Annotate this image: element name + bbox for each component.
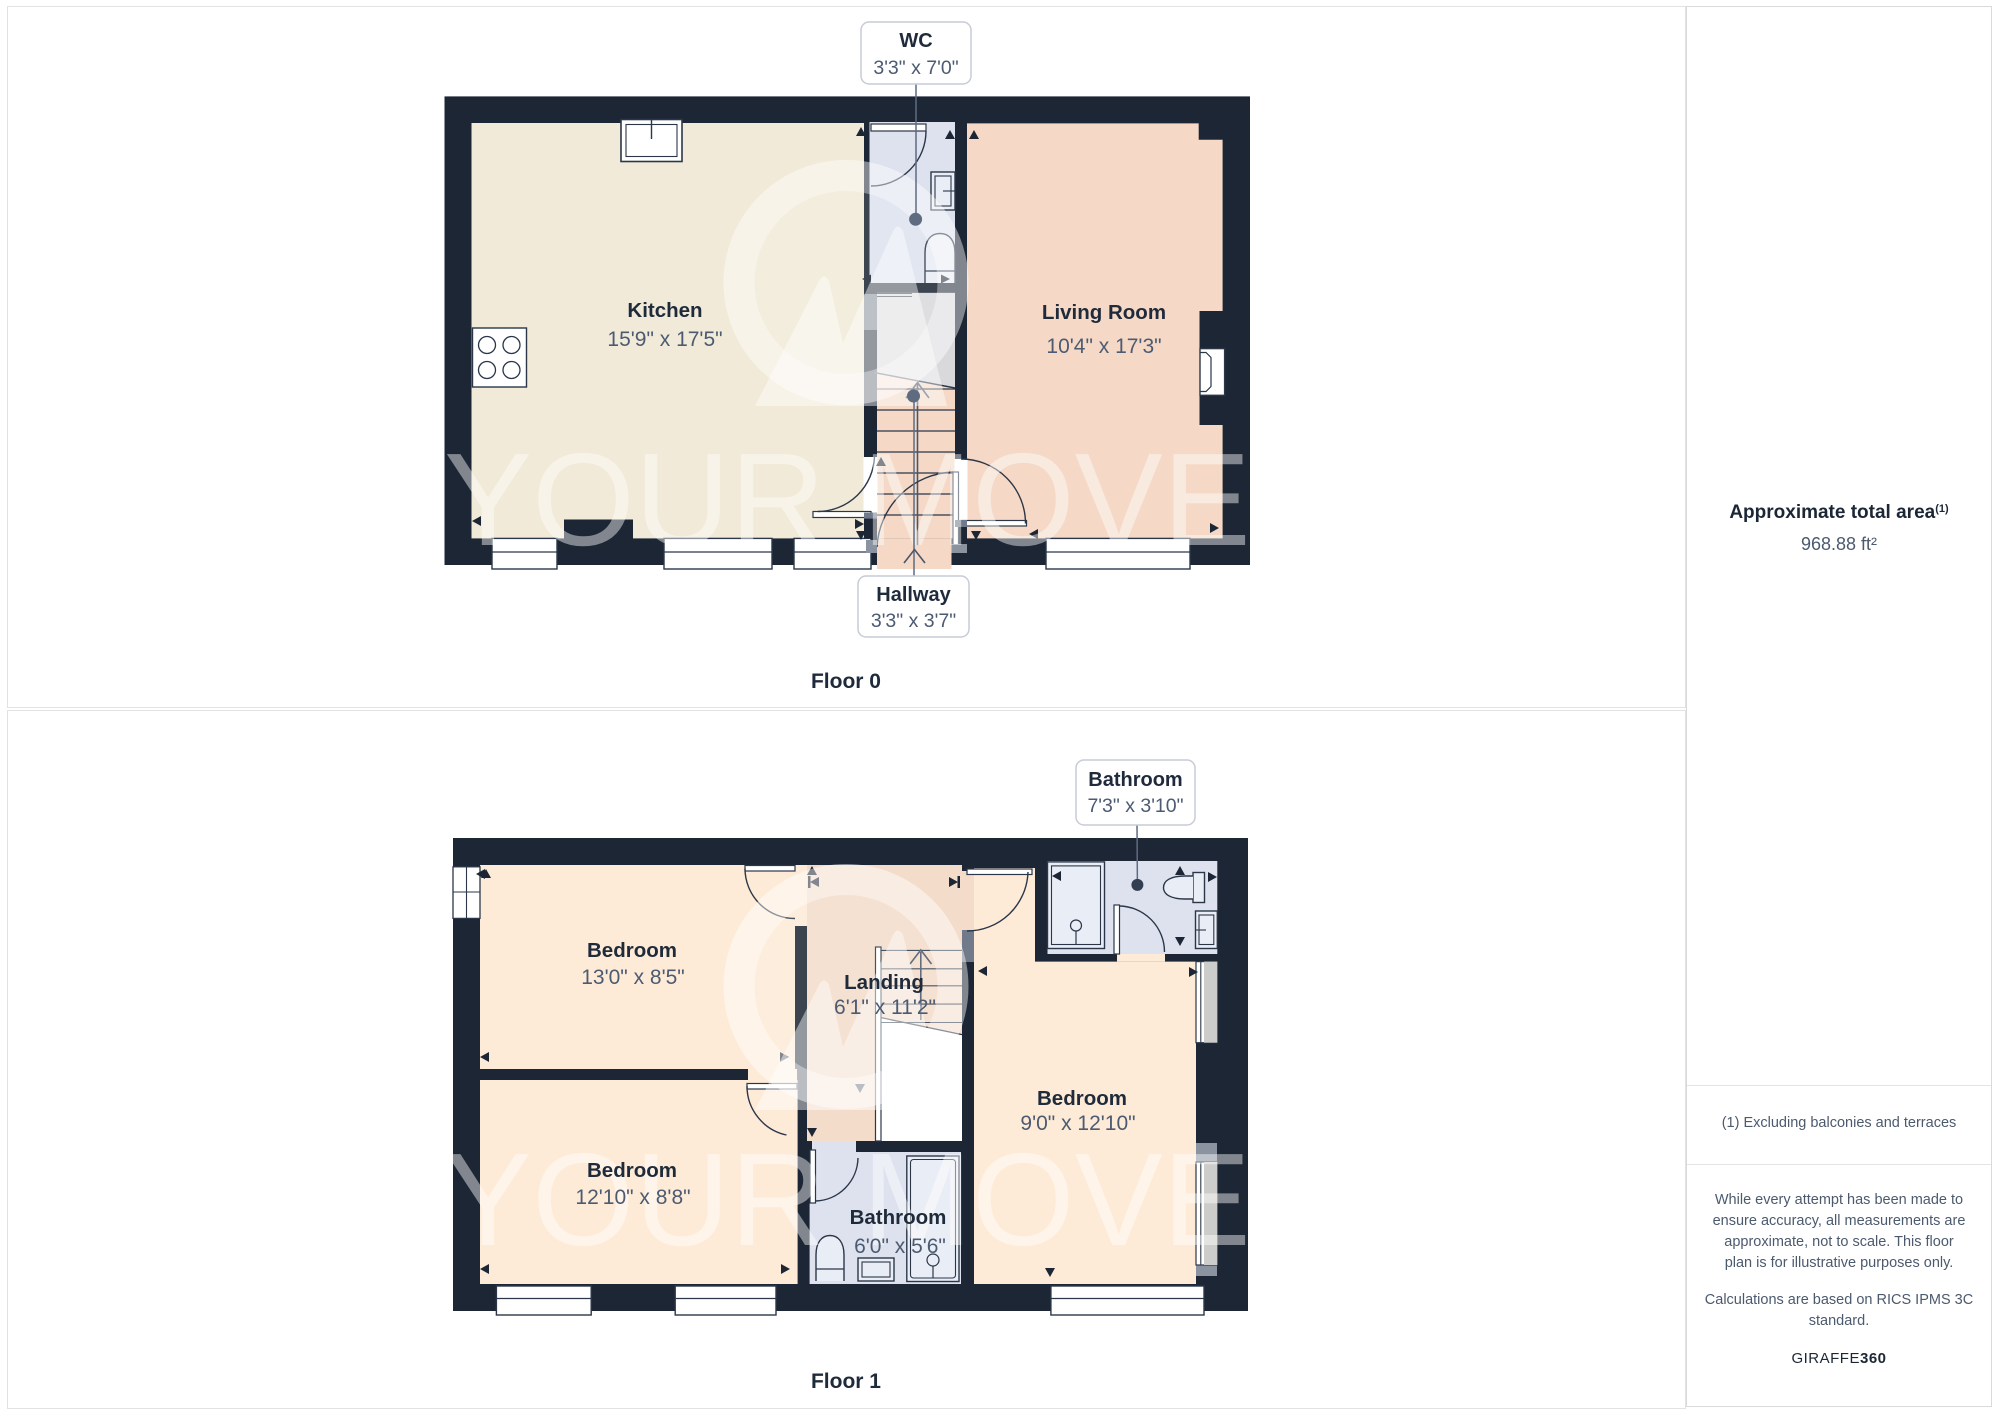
svg-text:13'0" x 8'5": 13'0" x 8'5": [581, 966, 685, 989]
svg-text:10'4" x 17'3": 10'4" x 17'3": [1046, 335, 1161, 358]
svg-text:Hallway: Hallway: [876, 584, 951, 606]
svg-text:3'3" x 7'0": 3'3" x 7'0": [873, 57, 958, 79]
svg-text:7'3" x 3'10": 7'3" x 3'10": [1087, 795, 1183, 817]
svg-text:9'0" x 12'10": 9'0" x 12'10": [1020, 1112, 1135, 1135]
svg-text:YOUR MOVE: YOUR MOVE: [444, 426, 1251, 573]
svg-text:Bathroom: Bathroom: [850, 1206, 947, 1229]
svg-text:3'3" x 3'7": 3'3" x 3'7": [871, 610, 956, 632]
svg-text:Bathroom: Bathroom: [1088, 769, 1182, 791]
svg-text:Living Room: Living Room: [1042, 301, 1166, 324]
svg-text:6'0" x 5'6": 6'0" x 5'6": [854, 1235, 946, 1258]
svg-text:Kitchen: Kitchen: [627, 299, 702, 322]
svg-text:Floor 0: Floor 0: [811, 670, 881, 693]
svg-text:YOUR MOVE: YOUR MOVE: [444, 1126, 1251, 1273]
svg-text:15'9" x 17'5": 15'9" x 17'5": [607, 328, 722, 351]
svg-text:Bedroom: Bedroom: [587, 939, 677, 962]
svg-text:Floor 1: Floor 1: [811, 1370, 881, 1393]
svg-text:Bedroom: Bedroom: [1037, 1087, 1127, 1110]
svg-text:6'1" x 11'2": 6'1" x 11'2": [834, 996, 936, 1019]
svg-text:Landing: Landing: [844, 971, 924, 994]
svg-text:12'10" x 8'8": 12'10" x 8'8": [575, 1186, 690, 1209]
svg-text:WC: WC: [899, 30, 932, 52]
svg-text:Bedroom: Bedroom: [587, 1159, 677, 1182]
